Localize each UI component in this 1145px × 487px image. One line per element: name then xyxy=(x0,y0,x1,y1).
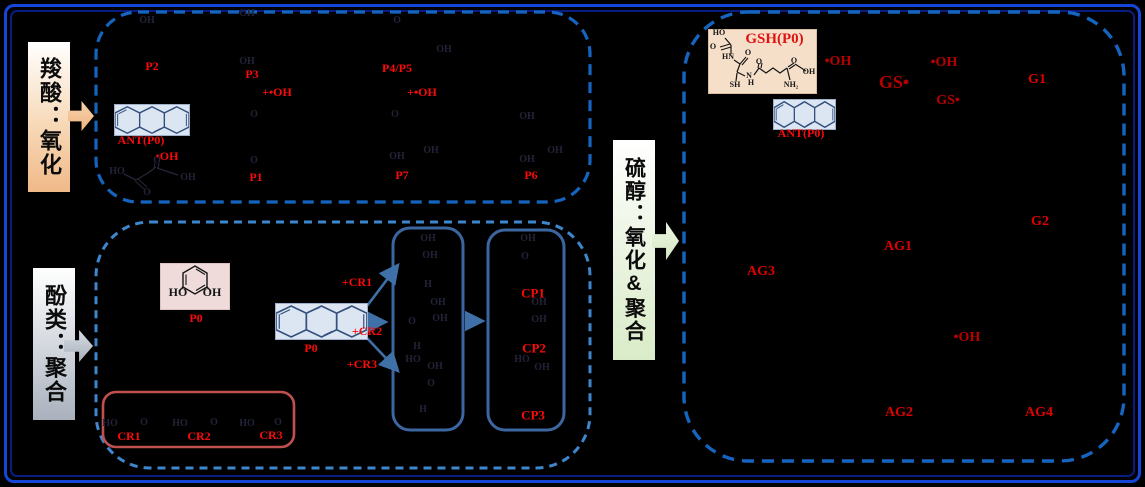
struct-OH: OH xyxy=(239,57,255,67)
struct-OH: OH xyxy=(519,155,535,165)
label-CR2: CR2 xyxy=(187,430,210,442)
struct-OH: OH xyxy=(531,315,547,325)
outer-frame-border xyxy=(4,4,1141,483)
reaction-scheme-figure: 羧酸：氧化 酚类：聚合 硫醇：氧化&聚合 xyxy=(0,0,1145,487)
label-CP3: CP3 xyxy=(521,409,545,422)
label-P7: P7 xyxy=(395,169,408,181)
struct-HO: HO xyxy=(405,355,421,365)
malonic-acid-skeleton xyxy=(112,155,192,200)
intermediate-box-outline xyxy=(393,228,463,430)
section-label-carboxylic: 羧酸：氧化 xyxy=(28,42,70,192)
label-plus-CR1: +CR1 xyxy=(342,276,372,288)
struct-OH: OH xyxy=(427,362,443,372)
label-G2: G2 xyxy=(1031,215,1049,229)
struct-O: O xyxy=(521,252,529,262)
struct-O: O xyxy=(393,16,401,26)
label-P0-ant: P0 xyxy=(304,342,317,354)
label-GS-radical: GS• xyxy=(879,73,909,91)
struct-OH: OH xyxy=(389,152,405,162)
struct-OH: OH xyxy=(520,234,536,244)
arrow-p0-to-cr1-path xyxy=(367,265,398,306)
struct-HO: HO xyxy=(172,419,188,429)
struct-OH: OH xyxy=(430,298,446,308)
struct-O: O xyxy=(408,317,416,327)
struct-H: H xyxy=(424,280,432,290)
label-oh-radical: •OH xyxy=(825,55,852,69)
struct-OH: OH xyxy=(519,112,535,122)
struct-O: O xyxy=(140,418,148,428)
struct-OH: OH xyxy=(436,45,452,55)
label-CR3: CR3 xyxy=(259,429,282,441)
struct-O: O xyxy=(391,110,399,120)
struct-HO: HO xyxy=(239,419,255,429)
section-arrow-carboxylic xyxy=(68,101,94,131)
label-P4-P5: P4/P5 xyxy=(382,62,412,74)
struct-H: H xyxy=(419,405,427,415)
label-plus-oh-radical: +•OH xyxy=(407,86,437,98)
anthracene-skeleton xyxy=(276,304,367,339)
label-GS-radical: GS• xyxy=(936,94,960,108)
label-CP2: CP2 xyxy=(522,342,546,355)
section-label-thiol-text: 硫醇：氧化&聚合 xyxy=(624,157,645,343)
struct-O: O xyxy=(250,110,258,120)
label-CR1: CR1 xyxy=(117,430,140,442)
inner-frame-border xyxy=(10,10,1135,477)
label-P2: P2 xyxy=(145,60,158,72)
struct-O: O xyxy=(427,379,435,389)
cr-radicals-box-outline xyxy=(103,392,294,447)
catechol-structure xyxy=(160,263,230,310)
gsh-skeleton xyxy=(709,30,816,93)
struct-O: O xyxy=(250,156,258,166)
struct-HO: HO xyxy=(514,355,530,365)
anthracene-structure-thiol xyxy=(773,99,836,130)
label-plus-CR3: +CR3 xyxy=(347,358,377,370)
label-AG1: AG1 xyxy=(884,240,912,254)
panel-outline-phenol xyxy=(96,222,590,468)
section-label-phenol-text: 酚类：聚合 xyxy=(43,284,65,404)
cp-products-box-outline xyxy=(488,230,564,430)
struct-HO: HO xyxy=(102,419,118,429)
section-label-carboxylic-text: 羧酸：氧化 xyxy=(38,57,60,177)
arrow-p0-to-cr3-path xyxy=(367,338,398,371)
label-G1: G1 xyxy=(1028,73,1046,87)
label-layer: P2P3P4/P5+•OH+•OHANT(P0)•OHP1P7P6OHOHOOH… xyxy=(0,0,1145,487)
label-oh-radical: •OH xyxy=(931,56,958,70)
struct-O: O xyxy=(210,418,218,428)
anthracene-skeleton xyxy=(115,105,189,135)
struct-O: O xyxy=(274,418,282,428)
anthracene-structure-phenol xyxy=(275,303,368,340)
label-AG4: AG4 xyxy=(1025,406,1053,420)
label-P1: P1 xyxy=(249,171,262,183)
label-P3: P3 xyxy=(245,68,258,80)
struct-H: H xyxy=(413,342,421,352)
struct-OH: OH xyxy=(420,234,436,244)
anthracene-skeleton xyxy=(774,100,835,129)
label-P6: P6 xyxy=(524,169,537,181)
label-plus-oh-radical: +•OH xyxy=(262,86,292,98)
struct-OH: OH xyxy=(423,146,439,156)
panel-outlines xyxy=(0,0,1145,487)
label-CP1: CP1 xyxy=(521,287,545,300)
struct-OH: OH xyxy=(239,9,255,19)
label-oh-radical: •OH xyxy=(954,331,981,345)
struct-OH: OH xyxy=(531,298,547,308)
label-P0-catechol: P0 xyxy=(189,312,202,324)
section-label-thiol: 硫醇：氧化&聚合 xyxy=(613,140,655,360)
struct-OH: OH xyxy=(139,16,155,26)
catechol-skeleton xyxy=(161,264,229,309)
gsh-structure: GSH(P0) xyxy=(708,29,817,94)
struct-OH: OH xyxy=(534,363,550,373)
struct-OH: OH xyxy=(547,146,563,156)
section-arrow-thiol xyxy=(652,222,679,260)
label-AG3: AG3 xyxy=(747,265,775,279)
label-AG2: AG2 xyxy=(885,406,913,420)
struct-OH: OH xyxy=(432,314,448,324)
struct-OH: OH xyxy=(422,251,438,261)
anthracene-structure-carboxylic xyxy=(114,104,190,136)
